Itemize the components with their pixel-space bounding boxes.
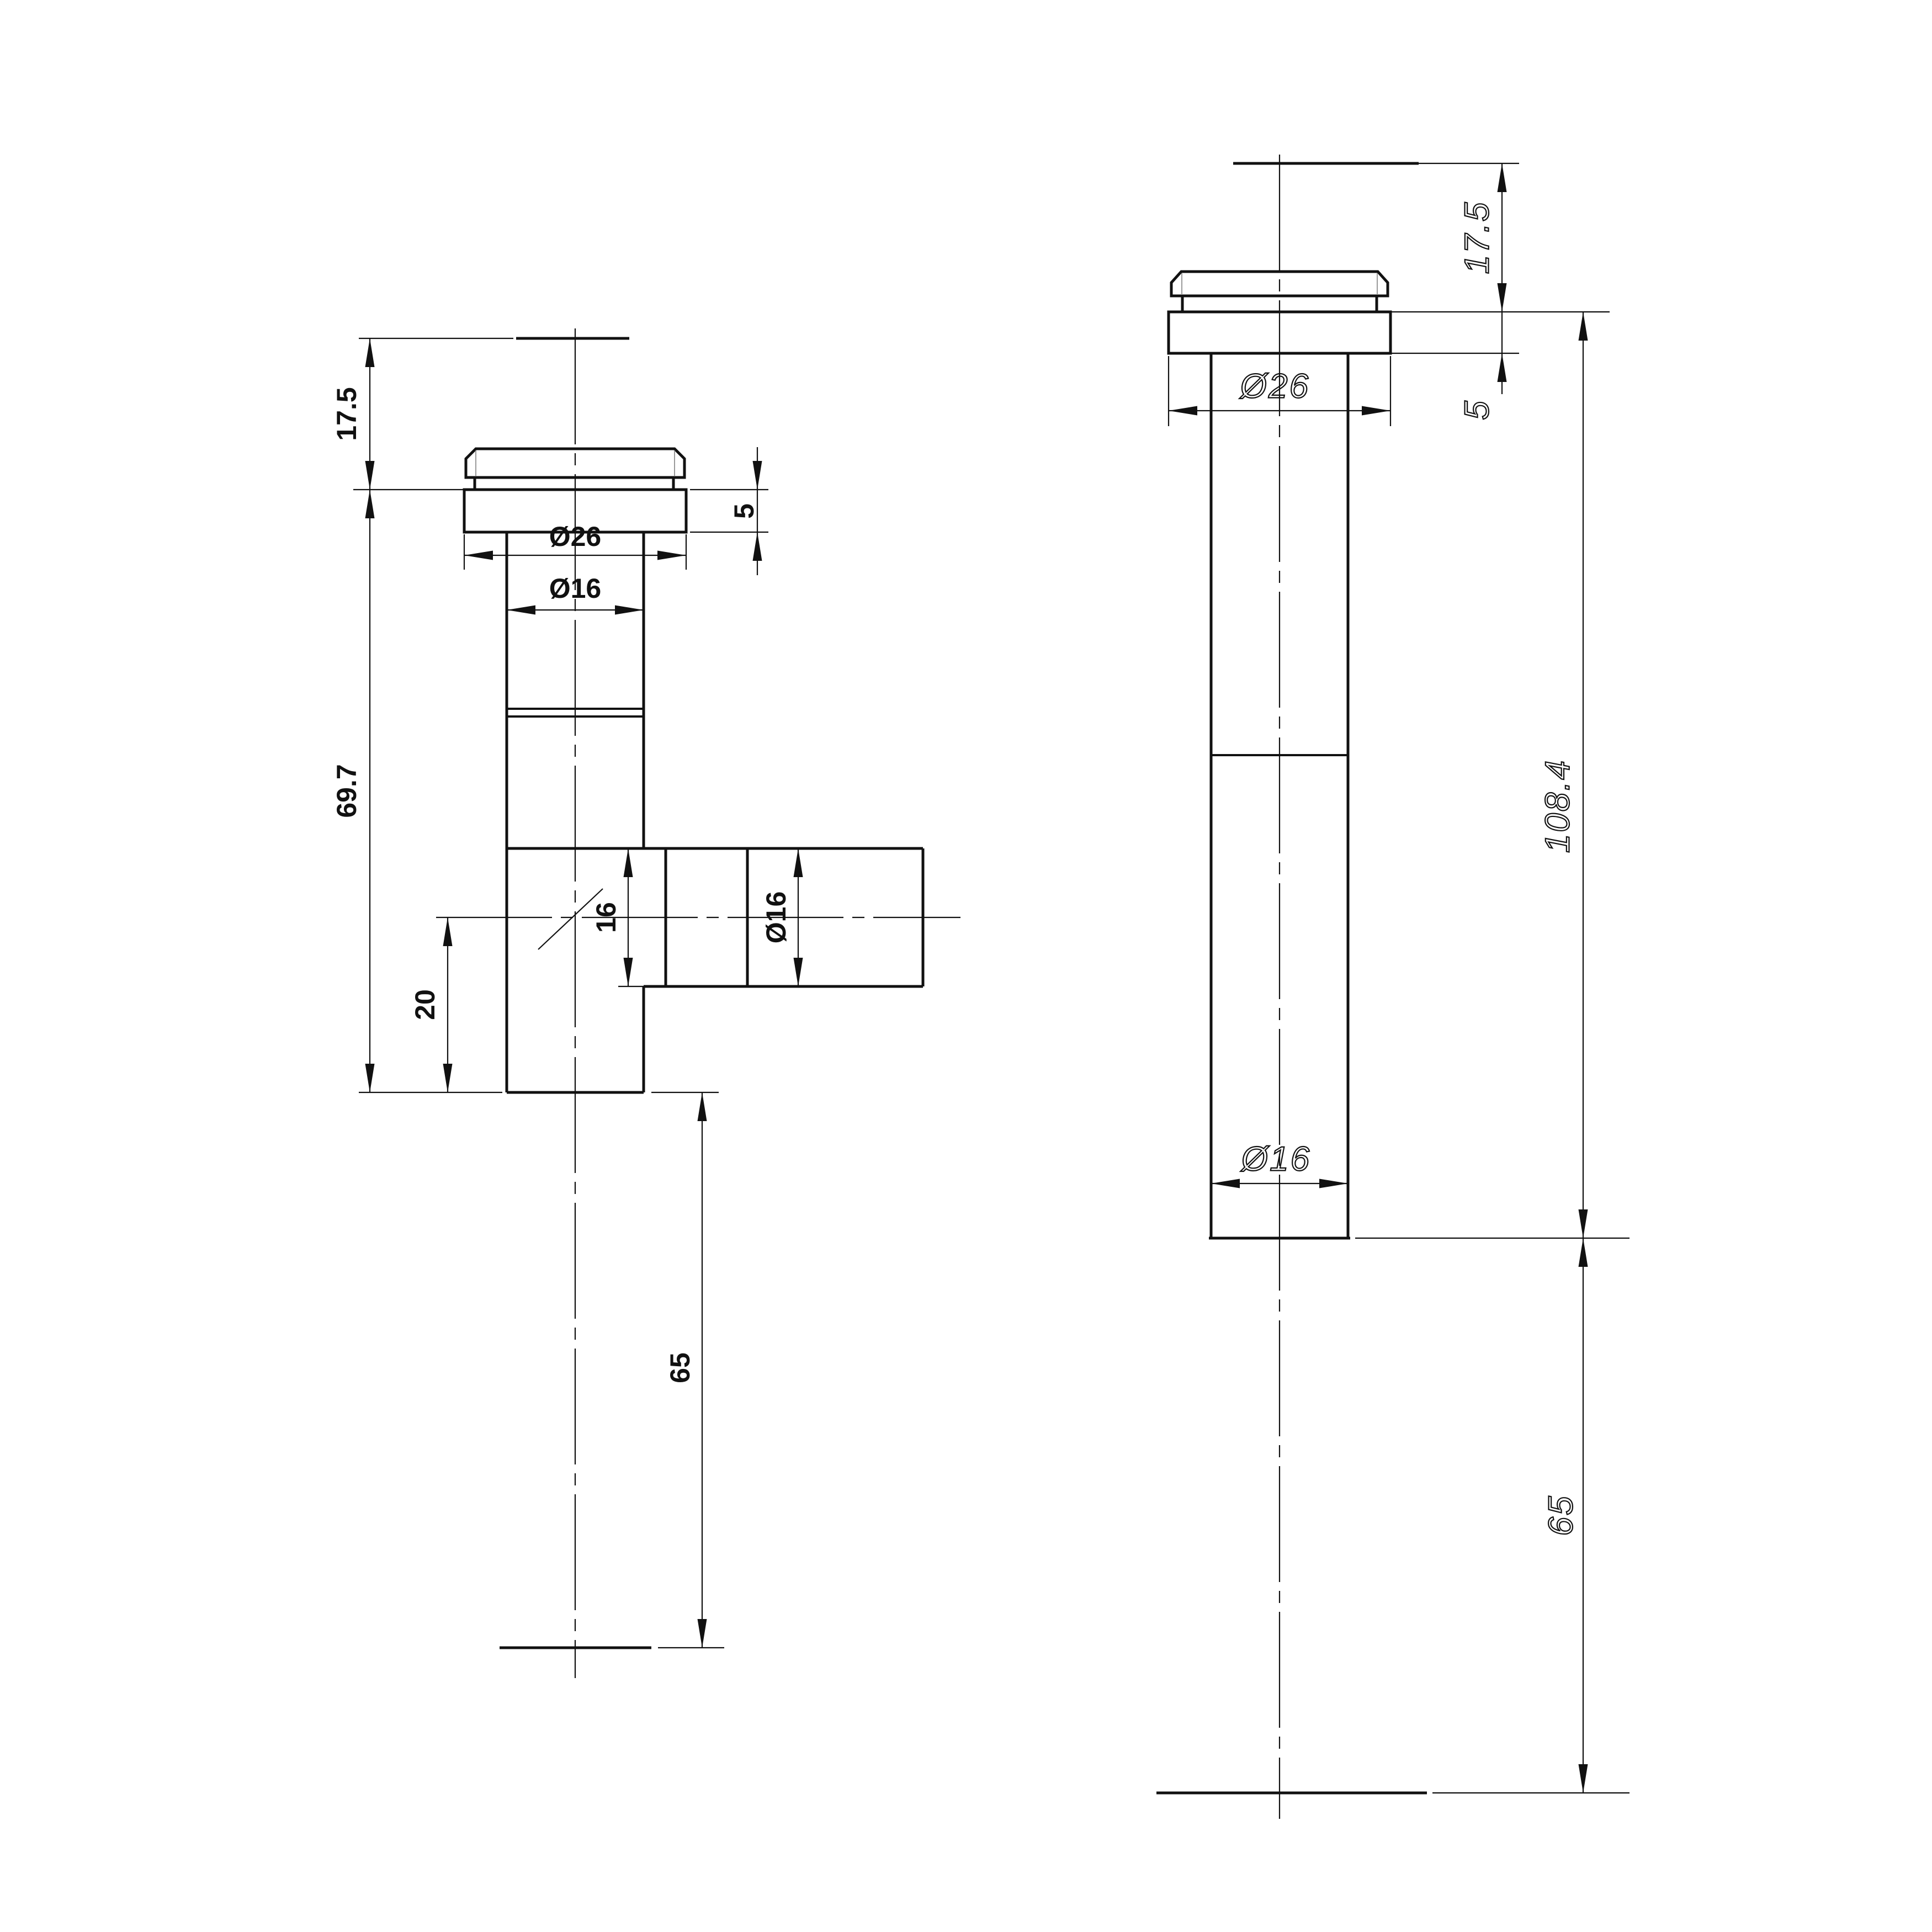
arrowhead — [1498, 283, 1507, 312]
arrowhead — [443, 1064, 453, 1092]
drawing-sheet: 17.5 69.7 20 65 Ø26 — [0, 0, 1932, 1932]
dim-label-shaft-dia: Ø16 — [549, 573, 602, 604]
left-view: 17.5 69.7 20 65 Ø26 — [331, 328, 960, 1678]
dim-label-branch-dia: Ø16 — [761, 891, 792, 944]
arrowhead — [365, 1064, 375, 1092]
dim-label-stem-height: 17.5 — [331, 387, 362, 440]
arrowhead — [698, 1619, 707, 1648]
arrowhead — [615, 606, 644, 615]
arrowhead — [1498, 353, 1507, 382]
arrowhead — [1169, 406, 1197, 416]
dim-label-branch-bore: 16 — [591, 902, 622, 933]
dim-label-stem-height: 17.5 — [1458, 201, 1496, 274]
arrowhead — [365, 338, 375, 367]
arrowhead — [1319, 1179, 1348, 1188]
arrowhead — [365, 490, 375, 518]
arrowhead — [1498, 163, 1507, 192]
arrowhead — [365, 461, 375, 490]
arrowhead — [507, 606, 535, 615]
arrowhead — [1579, 1764, 1588, 1793]
technical-drawing: 17.5 69.7 20 65 Ø26 — [0, 0, 1932, 1932]
arrowhead — [624, 958, 633, 986]
arrowhead — [443, 917, 453, 946]
dim-label-flange-thickness: 5 — [729, 503, 760, 519]
arrowhead — [753, 461, 762, 490]
arrowhead — [753, 532, 762, 561]
arrowhead — [1362, 406, 1390, 416]
dim-label-flange-dia: Ø26 — [549, 521, 602, 552]
arrowhead — [794, 958, 803, 986]
arrowhead — [1579, 312, 1588, 341]
arrowhead — [1211, 1179, 1240, 1188]
arrowhead — [698, 1092, 707, 1121]
arrowhead — [464, 551, 493, 560]
dim-label-shaft-dia: Ø16 — [1240, 1140, 1311, 1179]
dim-label-total-height: 108.4 — [1539, 759, 1577, 853]
arrowhead — [794, 848, 803, 877]
dim-label-inlet-length: 65 — [1542, 1495, 1580, 1536]
arrowhead — [657, 551, 686, 560]
arrowhead — [1579, 1209, 1588, 1238]
arrowhead — [1579, 1238, 1588, 1267]
arrowhead — [624, 848, 633, 877]
right-view: 17.5 5 Ø26 108.4 Ø16 — [1156, 155, 1630, 1819]
dim-label-inlet-length: 65 — [665, 1352, 696, 1383]
dim-label-branch-offset: 20 — [410, 989, 440, 1020]
dim-label-flange-thickness: 5 — [1458, 399, 1496, 420]
dim-label-flange-dia: Ø26 — [1239, 368, 1310, 406]
right-dimensions: 17.5 5 Ø26 108.4 Ø16 — [1169, 163, 1630, 1793]
dim-label-body-height: 69.7 — [331, 764, 362, 818]
left-dimensions: 17.5 69.7 20 65 Ø26 — [331, 338, 803, 1648]
left-outline — [464, 338, 923, 1648]
